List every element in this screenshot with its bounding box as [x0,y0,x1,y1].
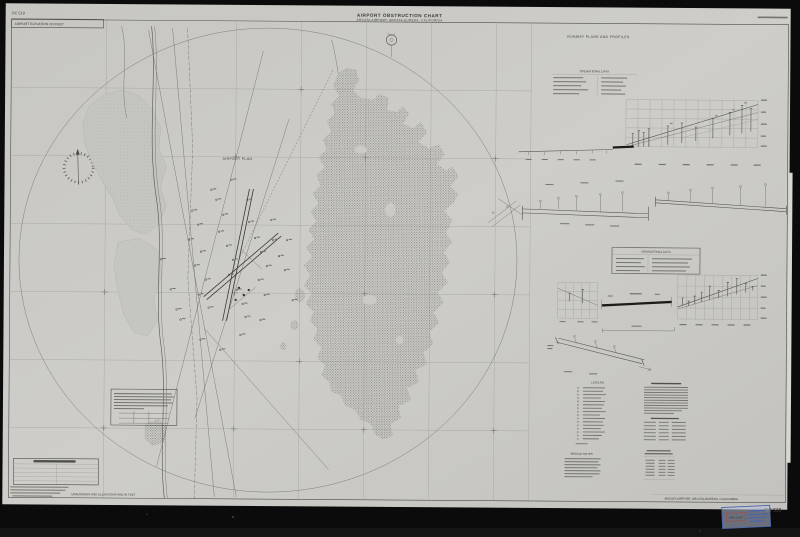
airport-elevation-label: AIRPORT ELEVATION 218 FEET [15,22,64,26]
photo-stage: OC 519 AIRPORT OBSTRUCTION CHART ARCATA … [0,0,800,537]
chart-paper: OC 519 AIRPORT OBSTRUCTION CHART ARCATA … [2,3,794,529]
table-edge [0,528,800,537]
dimensions-note: DIMENSIONS AND ELEVATIONS ARE IN FEET [71,492,136,496]
legend-header: LEGEND [591,380,604,384]
library-stamp: FEB 18 80 [722,505,771,528]
operational-data-header-1: OPERATIONAL DATA [580,69,609,73]
operational-data-header-2: OPERATIONAL DATA [641,250,670,254]
airport-plan-label: AIRPORT PLAN [223,157,253,161]
special-notes-header: SPECIAL NOTES [571,452,593,456]
stamp-date: FEB 18 80 [729,515,743,520]
oc-number-top: OC 519 [12,11,25,15]
runway-plans-profiles-title: RUNWAY PLANS AND PROFILES [567,35,630,39]
edition-note-lines [758,17,788,19]
chart-artwork: OC 519 AIRPORT OBSTRUCTION CHART ARCATA … [0,0,800,537]
footer-airport-title: ARCATA AIRPORT, ARCATA-EUREKA, CALIFORNI… [664,497,739,502]
